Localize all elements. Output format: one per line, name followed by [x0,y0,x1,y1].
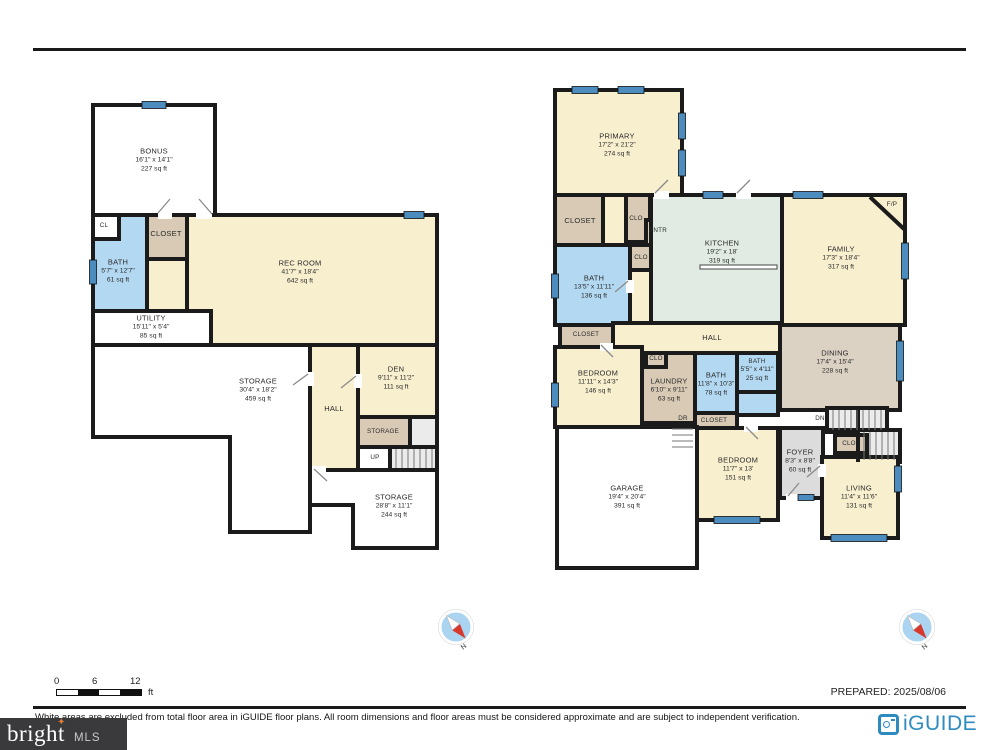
room-label-bedroom-closet: CLOSET [573,331,599,339]
room-label-laundry: LAUNDRY 6'10" x 9'11" 63 sq ft [650,376,687,403]
room-label-family: FAMILY 17'3" x 18'4" 317 sq ft [822,244,859,271]
scale-tick-6: 6 [92,676,97,687]
scale-tick-12: 12 [130,676,141,687]
room-label-closet-bath: CLOSET [701,417,727,425]
iguide-logo: iGUIDE [878,712,977,736]
room-label-bath-lower: BATH 5'7" x 12'7" 61 sq ft [101,257,135,284]
dr-label: DR [678,415,688,423]
room-label-hall-main: HALL [702,333,722,343]
room-label-cl: CL [100,222,108,230]
bottom-divider-line [33,706,966,709]
room-label-storage-small: STORAGE [367,428,399,436]
room-label-storage-main: STORAGE 30'4" x 18'2" 459 sq ft [239,376,277,403]
room-label-primary-closet: CLOSET [564,216,595,226]
bright-star-icon: ✦ [57,717,66,728]
bright-mls-logo: bright✦ MLS [0,718,127,750]
room-label-primary: PRIMARY 17'2" x 21'2" 274 sq ft [598,131,635,158]
iguide-wordmark: iGUIDE [903,712,977,736]
room-label-storage-bottom: STORAGE 28'8" x 11'1" 244 sq ft [375,492,413,519]
fireplace-label: F/P [887,201,897,209]
compass-rose-lower: N [437,608,477,654]
room-label-clo-b: CLO [634,254,648,262]
room-label-living: LIVING 11'4" x 11'6" 131 sq ft [841,483,877,510]
compass-rose-main: N [898,608,938,654]
room-label-clo-a: CLO [629,215,643,223]
scale-unit: ft [148,687,153,698]
stairs-down-label: DN [815,415,825,423]
disclaimer-text: White areas are excluded from total floo… [35,712,800,723]
iguide-camera-icon [878,714,899,735]
room-label-clo-foyer: CLO [842,440,856,448]
floorplan-page: BONUS 16'1" x 14'1" 227 sq ft CL BATH 5'… [0,0,1000,750]
scale-bar-segments [56,689,142,696]
room-label-bedroom2: BEDROOM 11'7" x 13' 151 sq ft [718,455,758,482]
mls-wordmark: MLS [74,732,101,744]
room-label-kitchen: KITCHEN 19'2" x 18' 319 sq ft [705,238,739,265]
room-label-hall-lower: HALL [324,404,344,414]
room-label-dining: DINING 17'4" x 15'4" 228 sq ft [816,348,853,375]
room-label-bath-main: BATH 11'8" x 10'3" 78 sq ft [698,370,735,397]
room-label-bath-small: BATH 5'5" x 4'11" 25 sq ft [741,358,774,384]
stairs-up-label: UP [370,454,379,462]
prepared-date: PREPARED: 2025/08/06 [700,686,946,698]
room-label-pantry: PNTR [649,227,667,235]
scale-bar: 0 6 12 ft [50,676,150,696]
room-label-primary-bath: BATH 13'5" x 11'11" 136 sq ft [574,273,614,300]
scale-tick-0: 0 [54,676,59,687]
room-label-rec-room: REC ROOM 41'7" x 18'4" 642 sq ft [279,258,322,285]
room-label-bonus: BONUS 16'1" x 14'1" 227 sq ft [135,146,172,173]
top-divider-line [33,48,966,51]
room-label-closet-lower: CLOSET [150,229,181,239]
room-label-garage: GARAGE 19'4" x 20'4" 391 sq ft [608,483,645,510]
room-label-clo-laundry: CLO [649,355,663,363]
room-label-den: DEN 9'11" x 11'2" 111 sq ft [378,364,414,391]
room-label-utility: UTILITY 15'11" x 5'4" 85 sq ft [133,313,170,340]
room-label-bedroom1: BEDROOM 11'11" x 14'3" 146 sq ft [578,368,618,395]
room-label-foyer: FOYER 8'3" x 8'8" 60 sq ft [785,447,815,474]
